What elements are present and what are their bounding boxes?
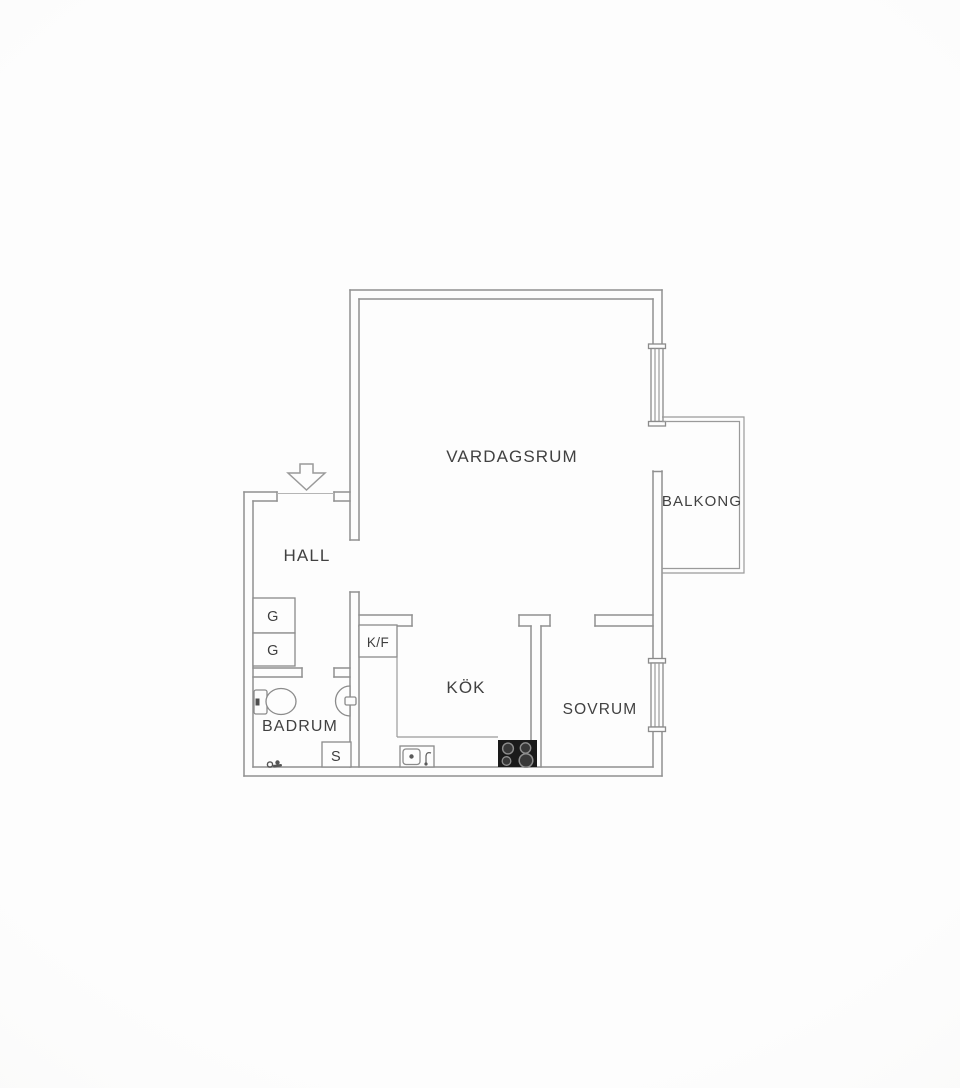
- fixture-label-wardrobe-1: G: [267, 609, 279, 625]
- floor-plan-page: { "rooms": { "vardagsrum": { "label": "V…: [0, 0, 960, 1088]
- entry-arrow-icon: [288, 464, 325, 490]
- floor-drain-symbol: [267, 760, 282, 767]
- room-label-sovrum: SOVRUM: [563, 701, 638, 718]
- window-symbol-livingroom: [649, 344, 666, 426]
- kitchen-sink-symbol: [400, 746, 434, 767]
- bathroom-sink-symbol: [336, 686, 357, 716]
- room-label-vardagsrum: VARDAGSRUM: [446, 447, 578, 466]
- room-label-balkong: BALKONG: [662, 493, 742, 510]
- room-label-hall: HALL: [284, 546, 331, 565]
- toilet-symbol: [254, 689, 296, 715]
- window-symbol-bedroom: [649, 659, 666, 732]
- fixture-label-cabinet: S: [331, 749, 341, 765]
- stove-symbol: [498, 740, 537, 767]
- kitchen-counter: [397, 657, 498, 737]
- room-label-kok: KÖK: [446, 678, 485, 697]
- fixture-label-wardrobe-2: G: [267, 643, 279, 659]
- floor-plan-drawing: VARDAGSRUM BALKONG HALL KÖK SOVRUM BADRU…: [0, 0, 960, 1088]
- room-label-badrum: BADRUM: [262, 718, 338, 735]
- fixture-label-fridge-freezer: K/F: [367, 635, 389, 650]
